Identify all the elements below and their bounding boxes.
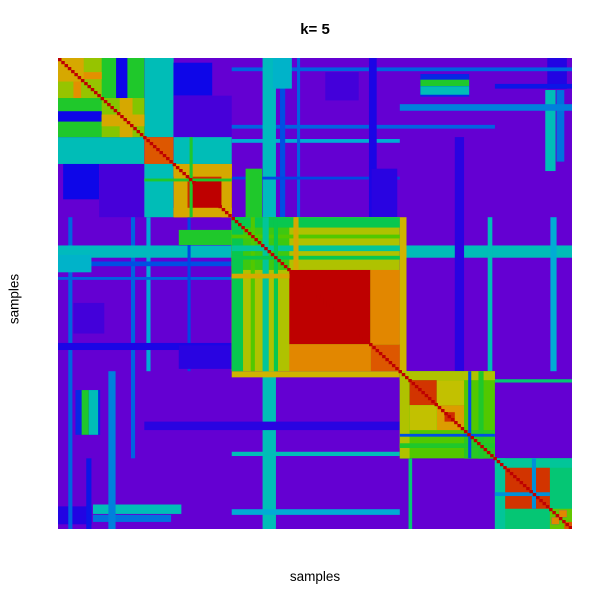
x-axis-label: samples	[58, 569, 572, 584]
consensus-heatmap	[58, 58, 572, 529]
y-axis-label: samples	[7, 274, 22, 324]
consensus-matrix-figure: k= 5 samples samples	[0, 0, 600, 600]
chart-title: k= 5	[58, 21, 572, 38]
